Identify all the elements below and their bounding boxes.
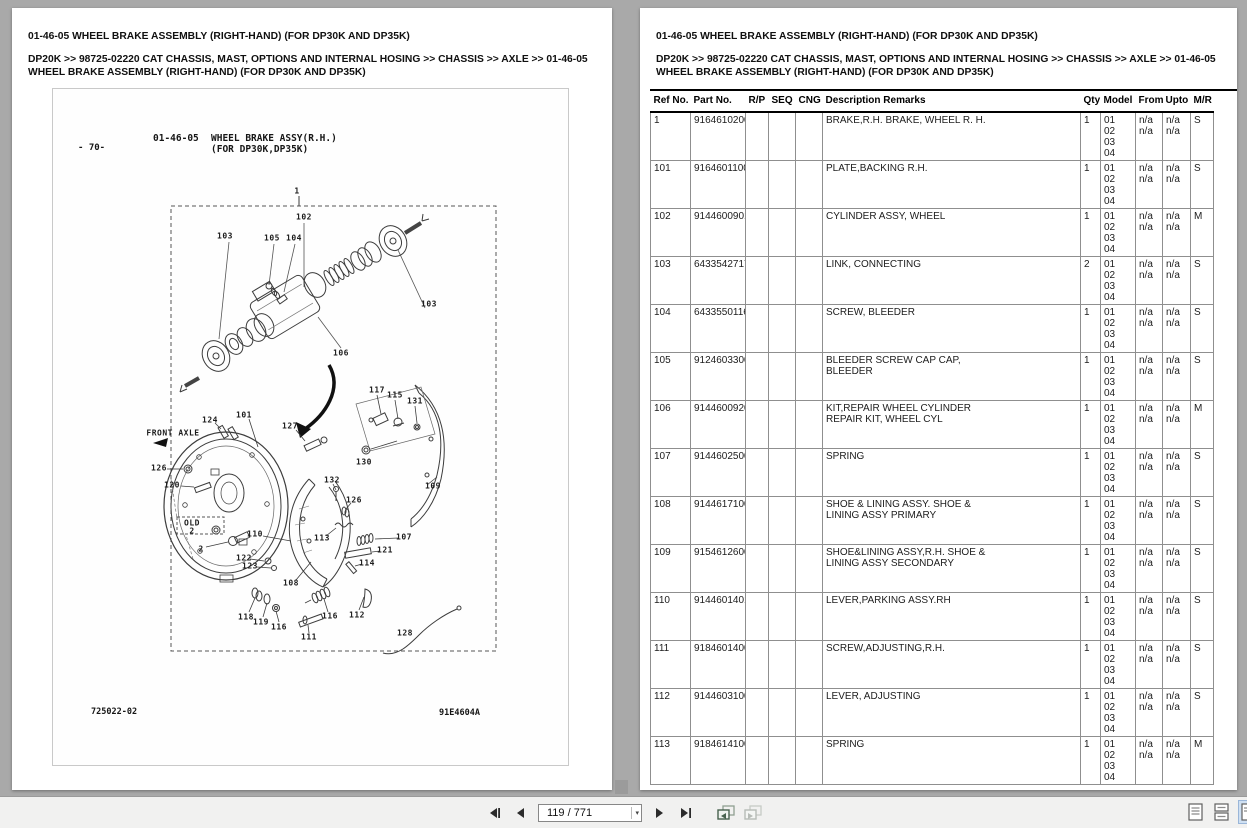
qty-cell: 2 xyxy=(1081,257,1101,305)
diagram-callout: 112 xyxy=(349,611,365,620)
cng-cell xyxy=(796,641,823,689)
model-cell: 01020304 xyxy=(1101,545,1136,593)
document-page-right: 01-46-05 WHEEL BRAKE ASSEMBLY (RIGHT-HAN… xyxy=(640,8,1237,790)
description-cell: SPRING xyxy=(823,449,1081,497)
document-page-left: 01-46-05 WHEEL BRAKE ASSEMBLY (RIGHT-HAN… xyxy=(12,8,612,790)
table-row: 1029144600901CYLINDER ASSY, WHEEL1010203… xyxy=(651,209,1214,257)
mr-cell: S xyxy=(1191,593,1214,641)
upto-cell: n/an/a xyxy=(1163,641,1191,689)
part-no-cell: 9144617100 xyxy=(691,497,746,545)
cng-cell xyxy=(796,689,823,737)
cng-cell xyxy=(796,112,823,161)
model-cell: 01020304 xyxy=(1101,641,1136,689)
description-cell: LEVER, ADJUSTING xyxy=(823,689,1081,737)
upto-cell: n/an/a xyxy=(1163,593,1191,641)
rp-cell xyxy=(746,497,769,545)
cng-cell xyxy=(796,593,823,641)
cng-cell xyxy=(796,161,823,209)
upto-cell: n/an/a xyxy=(1163,449,1191,497)
table-row: 1079144602500SPRING101020304n/an/an/an/a… xyxy=(651,449,1214,497)
table-row: 1046433550116SCREW, BLEEDER101020304n/an… xyxy=(651,305,1214,353)
description-cell: SPRING xyxy=(823,737,1081,785)
from-cell: n/an/a xyxy=(1136,737,1163,785)
model-cell: 01020304 xyxy=(1101,449,1136,497)
diagram-callout: 107 xyxy=(396,533,412,542)
seq-cell xyxy=(769,497,796,545)
continuous-view-icon xyxy=(1214,803,1229,821)
breadcrumb: DP20K >> 98725-02220 CAT CHASSIS, MAST, … xyxy=(28,53,606,79)
description-cell: KIT,REPAIR WHEEL CYLINDERREPAIR KIT, WHE… xyxy=(823,401,1081,449)
cng-cell xyxy=(796,209,823,257)
seq-cell xyxy=(769,257,796,305)
next-page-icon xyxy=(653,807,665,819)
model-cell: 01020304 xyxy=(1101,401,1136,449)
from-cell: n/an/a xyxy=(1136,257,1163,305)
description-cell: SHOE&LINING ASSY,R.H. SHOE &LINING ASSY … xyxy=(823,545,1081,593)
mr-cell: M xyxy=(1191,401,1214,449)
mr-cell: M xyxy=(1191,737,1214,785)
last-page-icon xyxy=(680,807,693,819)
diagram-callout: FRONT AXLE xyxy=(146,429,199,438)
part-no-cell: 9164610200 xyxy=(691,112,746,161)
table-row: 1099154612600SHOE&LINING ASSY,R.H. SHOE … xyxy=(651,545,1214,593)
diagram-callout: 118 xyxy=(238,613,254,622)
ref-no-cell: 108 xyxy=(651,497,691,545)
ref-no-cell: 111 xyxy=(651,641,691,689)
next-page-button[interactable] xyxy=(649,803,669,823)
figure-code: 01-46-05 xyxy=(153,133,199,144)
qty-cell: 1 xyxy=(1081,641,1101,689)
diagram-scan-area: 01-46-05 WHEEL BRAKE ASSY(R.H.) (FOR DP3… xyxy=(52,88,569,766)
last-page-button[interactable] xyxy=(676,803,696,823)
from-cell: n/an/a xyxy=(1136,112,1163,161)
diagram-callout: 109 xyxy=(425,482,441,491)
diagram-callout: 123 xyxy=(242,562,258,571)
qty-cell: 1 xyxy=(1081,401,1101,449)
diagram-callout: 120 xyxy=(164,481,180,490)
ref-no-cell: 1 xyxy=(651,112,691,161)
diagram-callout: 106 xyxy=(333,349,349,358)
figure-page-number: - 70- xyxy=(78,143,105,153)
qty-cell: 1 xyxy=(1081,161,1101,209)
qty-cell: 1 xyxy=(1081,209,1101,257)
part-no-cell: 6433550116 xyxy=(691,305,746,353)
mr-cell: S xyxy=(1191,545,1214,593)
ref-no-cell: 105 xyxy=(651,353,691,401)
page-dropdown-arrow-icon[interactable]: ▾ xyxy=(631,807,639,819)
table-row: 1139184614100SPRING101020304n/an/an/an/a… xyxy=(651,737,1214,785)
part-no-cell: 9184601400 xyxy=(691,641,746,689)
from-cell: n/an/a xyxy=(1136,689,1163,737)
from-cell: n/an/a xyxy=(1136,401,1163,449)
ref-no-cell: 101 xyxy=(651,161,691,209)
mr-cell: S xyxy=(1191,689,1214,737)
diagram-callout: 103 xyxy=(421,300,437,309)
rp-cell xyxy=(746,161,769,209)
mr-cell: S xyxy=(1191,112,1214,161)
ref-no-cell: 113 xyxy=(651,737,691,785)
cng-cell xyxy=(796,353,823,401)
qty-cell: 1 xyxy=(1081,353,1101,401)
cng-cell xyxy=(796,497,823,545)
model-cell: 01020304 xyxy=(1101,112,1136,161)
ref-no-cell: 103 xyxy=(651,257,691,305)
breadcrumb: DP20K >> 98725-02220 CAT CHASSIS, MAST, … xyxy=(656,53,1234,79)
first-page-icon xyxy=(488,807,501,819)
horizontal-scrollbar-thumb[interactable] xyxy=(615,780,628,794)
upto-cell: n/an/a xyxy=(1163,689,1191,737)
ref-no-cell: 112 xyxy=(651,689,691,737)
qty-cell: 1 xyxy=(1081,112,1101,161)
diagram-callout: 121 xyxy=(377,546,393,555)
parts-table: Ref No.Part No.R/PSEQCNGDescription Rema… xyxy=(650,91,1214,785)
model-cell: 01020304 xyxy=(1101,689,1136,737)
from-cell: n/an/a xyxy=(1136,593,1163,641)
next-view-button[interactable] xyxy=(743,803,763,823)
qty-cell: 1 xyxy=(1081,305,1101,353)
seq-cell xyxy=(769,401,796,449)
parts-table-header-row: Ref No.Part No.R/PSEQCNGDescription Rema… xyxy=(651,91,1214,112)
upto-cell: n/an/a xyxy=(1163,257,1191,305)
seq-cell xyxy=(769,737,796,785)
qty-cell: 1 xyxy=(1081,545,1101,593)
column-header: CNG xyxy=(796,91,823,112)
qty-cell: 1 xyxy=(1081,737,1101,785)
facing-view-button[interactable] xyxy=(1238,800,1247,824)
column-header: R/P xyxy=(746,91,769,112)
mr-cell: S xyxy=(1191,641,1214,689)
mr-cell: S xyxy=(1191,257,1214,305)
seq-cell xyxy=(769,593,796,641)
part-no-cell: 9144600901 xyxy=(691,209,746,257)
seq-cell xyxy=(769,641,796,689)
table-row: 1059124603300BLEEDER SCREW CAP CAP,BLEED… xyxy=(651,353,1214,401)
seq-cell xyxy=(769,449,796,497)
ref-no-cell: 109 xyxy=(651,545,691,593)
cng-cell xyxy=(796,401,823,449)
from-cell: n/an/a xyxy=(1136,497,1163,545)
mr-cell: M xyxy=(1191,209,1214,257)
rp-cell xyxy=(746,209,769,257)
qty-cell: 1 xyxy=(1081,449,1101,497)
cng-cell xyxy=(796,545,823,593)
diagram-callout: 130 xyxy=(356,458,372,467)
diagram-callout: 110 xyxy=(247,530,263,539)
from-cell: n/an/a xyxy=(1136,353,1163,401)
column-header: Qty xyxy=(1081,91,1101,112)
upto-cell: n/an/a xyxy=(1163,112,1191,161)
continuous-view-button[interactable] xyxy=(1212,801,1231,823)
seq-cell xyxy=(769,161,796,209)
next-view-icon xyxy=(743,804,763,822)
diagram-callout: 116 xyxy=(271,623,287,632)
part-no-cell: 9184614100 xyxy=(691,737,746,785)
part-no-cell: 9144603100 xyxy=(691,689,746,737)
previous-view-icon xyxy=(716,804,736,822)
from-cell: n/an/a xyxy=(1136,641,1163,689)
from-cell: n/an/a xyxy=(1136,305,1163,353)
model-cell: 01020304 xyxy=(1101,161,1136,209)
model-cell: 01020304 xyxy=(1101,737,1136,785)
seq-cell xyxy=(769,545,796,593)
mr-cell: S xyxy=(1191,497,1214,545)
from-cell: n/an/a xyxy=(1136,545,1163,593)
rp-cell xyxy=(746,257,769,305)
diagram-callout: 117 xyxy=(369,386,385,395)
column-header: Ref No. xyxy=(651,91,691,112)
description-cell: SCREW, BLEEDER xyxy=(823,305,1081,353)
rp-cell xyxy=(746,545,769,593)
first-page-button[interactable] xyxy=(484,803,504,823)
single-page-view-button[interactable] xyxy=(1186,801,1205,823)
diagram-callout: 119 xyxy=(253,618,269,627)
diagram-callout: 2 xyxy=(198,545,203,554)
pdf-viewer: 01-46-05 WHEEL BRAKE ASSEMBLY (RIGHT-HAN… xyxy=(0,0,1247,828)
exploded-diagram-drawing xyxy=(53,89,568,765)
part-no-cell: 9144601401 xyxy=(691,593,746,641)
facing-view-icon xyxy=(1241,803,1247,821)
rp-cell xyxy=(746,641,769,689)
column-header: From xyxy=(1136,91,1163,112)
cng-cell xyxy=(796,257,823,305)
model-cell: 01020304 xyxy=(1101,257,1136,305)
model-cell: 01020304 xyxy=(1101,209,1136,257)
seq-cell xyxy=(769,305,796,353)
view-mode-group xyxy=(1186,800,1247,824)
table-row: 19164610200BRAKE,R.H. BRAKE, WHEEL R. H.… xyxy=(651,112,1214,161)
figure-title-line2: (FOR DP30K,DP35K) xyxy=(211,144,308,155)
part-no-cell: 9154612600 xyxy=(691,545,746,593)
diagram-callout: 126 xyxy=(346,496,362,505)
mr-cell: S xyxy=(1191,353,1214,401)
upto-cell: n/an/a xyxy=(1163,497,1191,545)
ref-no-cell: 106 xyxy=(651,401,691,449)
column-header: Description Remarks xyxy=(823,91,1081,112)
diagram-callout: 124 xyxy=(202,416,218,425)
table-row: 1036433542717LINK, CONNECTING201020304n/… xyxy=(651,257,1214,305)
upto-cell: n/an/a xyxy=(1163,401,1191,449)
column-header: Part No. xyxy=(691,91,746,112)
seq-cell xyxy=(769,353,796,401)
description-cell: PLATE,BACKING R.H. xyxy=(823,161,1081,209)
ref-no-cell: 102 xyxy=(651,209,691,257)
table-row: 1089144617100SHOE & LINING ASSY. SHOE &L… xyxy=(651,497,1214,545)
qty-cell: 1 xyxy=(1081,689,1101,737)
model-cell: 01020304 xyxy=(1101,353,1136,401)
bottom-toolbar: 119 / 771 ▾ xyxy=(0,796,1247,828)
figure-footer-right: 91E4604A xyxy=(439,708,480,718)
rp-cell xyxy=(746,112,769,161)
cng-cell xyxy=(796,737,823,785)
previous-view-button[interactable] xyxy=(716,803,736,823)
model-cell: 01020304 xyxy=(1101,305,1136,353)
part-no-cell: 9124603300 xyxy=(691,353,746,401)
upto-cell: n/an/a xyxy=(1163,737,1191,785)
table-row: 1069144600920KIT,REPAIR WHEEL CYLINDERRE… xyxy=(651,401,1214,449)
page-title: 01-46-05 WHEEL BRAKE ASSEMBLY (RIGHT-HAN… xyxy=(28,30,606,43)
diagram-callout: 128 xyxy=(397,629,413,638)
model-cell: 01020304 xyxy=(1101,497,1136,545)
mr-cell: S xyxy=(1191,161,1214,209)
diagram-callout: 102 xyxy=(296,213,312,222)
ref-no-cell: 107 xyxy=(651,449,691,497)
diagram-callout: 2 xyxy=(189,527,194,536)
ref-no-cell: 110 xyxy=(651,593,691,641)
description-cell: SCREW,ADJUSTING,R.H. xyxy=(823,641,1081,689)
qty-cell: 1 xyxy=(1081,593,1101,641)
seq-cell xyxy=(769,689,796,737)
previous-page-icon xyxy=(515,807,527,819)
cng-cell xyxy=(796,449,823,497)
parts-table-body: 19164610200BRAKE,R.H. BRAKE, WHEEL R. H.… xyxy=(651,112,1214,785)
upto-cell: n/an/a xyxy=(1163,545,1191,593)
from-cell: n/an/a xyxy=(1136,449,1163,497)
diagram-callout: 127 xyxy=(282,422,298,431)
rp-cell xyxy=(746,689,769,737)
description-cell: LEVER,PARKING ASSY.RH xyxy=(823,593,1081,641)
rp-cell xyxy=(746,401,769,449)
diagram-callout: 101 xyxy=(236,411,252,420)
rp-cell xyxy=(746,593,769,641)
diagram-callout: 131 xyxy=(407,397,423,406)
description-cell: SHOE & LINING ASSY. SHOE &LINING ASSY PR… xyxy=(823,497,1081,545)
description-cell: BRAKE,R.H. BRAKE, WHEEL R. H. xyxy=(823,112,1081,161)
upto-cell: n/an/a xyxy=(1163,305,1191,353)
diagram-callout: 105 xyxy=(264,234,280,243)
table-row: 1109144601401LEVER,PARKING ASSY.RH101020… xyxy=(651,593,1214,641)
seq-cell xyxy=(769,112,796,161)
page-indicator: 119 / 771 xyxy=(547,807,631,819)
diagram-callout: 104 xyxy=(286,234,302,243)
column-header: SEQ xyxy=(769,91,796,112)
description-cell: LINK, CONNECTING xyxy=(823,257,1081,305)
mr-cell: S xyxy=(1191,305,1214,353)
diagram-callout: 115 xyxy=(387,391,403,400)
upto-cell: n/an/a xyxy=(1163,353,1191,401)
diagram-callout: 114 xyxy=(359,559,375,568)
column-header: Upto xyxy=(1163,91,1191,112)
page-number-input[interactable]: 119 / 771 ▾ xyxy=(538,804,642,822)
table-row: 1129144603100LEVER, ADJUSTING101020304n/… xyxy=(651,689,1214,737)
diagram-callout: 111 xyxy=(301,633,317,642)
diagram-callout: 108 xyxy=(283,579,299,588)
figure-footer-left: 725022-02 xyxy=(91,707,137,717)
diagram-callout: 126 xyxy=(151,464,167,473)
ref-no-cell: 104 xyxy=(651,305,691,353)
model-cell: 01020304 xyxy=(1101,593,1136,641)
part-no-cell: 6433542717 xyxy=(691,257,746,305)
diagram-callout: 1 xyxy=(294,187,299,196)
diagram-callout: 103 xyxy=(217,232,233,241)
table-row: 1119184601400SCREW,ADJUSTING,R.H.1010203… xyxy=(651,641,1214,689)
part-no-cell: 9144600920 xyxy=(691,401,746,449)
rp-cell xyxy=(746,305,769,353)
diagram-callout: 116 xyxy=(322,612,338,621)
part-no-cell: 9164601100 xyxy=(691,161,746,209)
from-cell: n/an/a xyxy=(1136,209,1163,257)
table-row: 1019164601100PLATE,BACKING R.H.101020304… xyxy=(651,161,1214,209)
upto-cell: n/an/a xyxy=(1163,209,1191,257)
figure-title-line1: WHEEL BRAKE ASSY(R.H.) xyxy=(211,133,337,144)
diagram-callout: 113 xyxy=(314,534,330,543)
rp-cell xyxy=(746,737,769,785)
column-header: Model xyxy=(1101,91,1136,112)
cng-cell xyxy=(796,305,823,353)
qty-cell: 1 xyxy=(1081,497,1101,545)
rp-cell xyxy=(746,353,769,401)
previous-page-button[interactable] xyxy=(511,803,531,823)
mr-cell: S xyxy=(1191,449,1214,497)
rp-cell xyxy=(746,449,769,497)
description-cell: BLEEDER SCREW CAP CAP,BLEEDER xyxy=(823,353,1081,401)
diagram-callout: 132 xyxy=(324,476,340,485)
part-no-cell: 9144602500 xyxy=(691,449,746,497)
column-header: M/R xyxy=(1191,91,1214,112)
description-cell: CYLINDER ASSY, WHEEL xyxy=(823,209,1081,257)
from-cell: n/an/a xyxy=(1136,161,1163,209)
single-page-view-icon xyxy=(1188,803,1203,821)
upto-cell: n/an/a xyxy=(1163,161,1191,209)
page-title: 01-46-05 WHEEL BRAKE ASSEMBLY (RIGHT-HAN… xyxy=(656,30,1234,43)
seq-cell xyxy=(769,209,796,257)
